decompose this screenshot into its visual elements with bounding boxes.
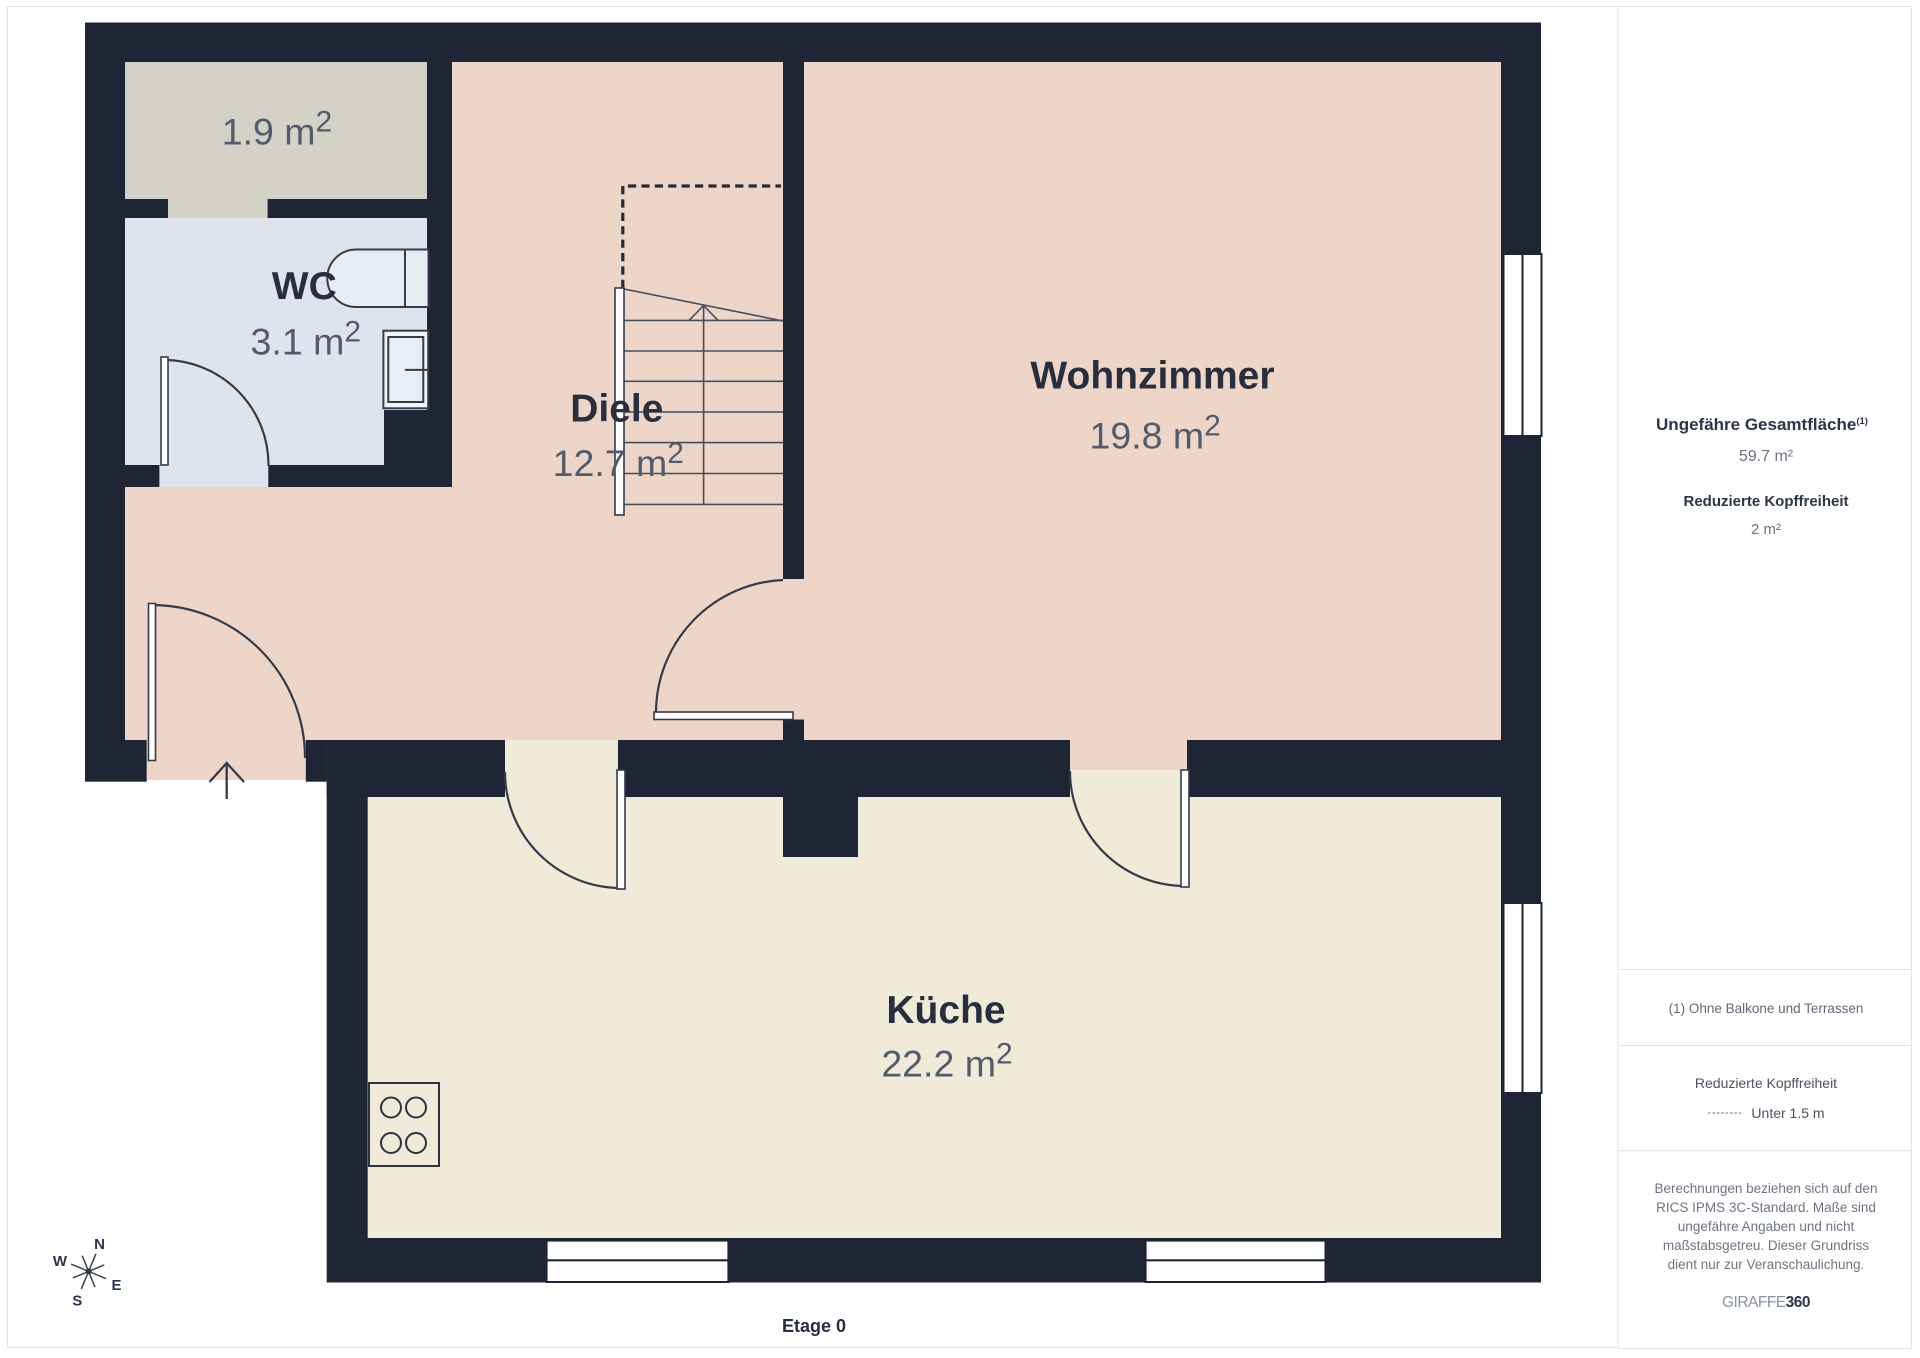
svg-text:ungefähre Angaben und nicht: ungefähre Angaben und nicht <box>1678 1219 1855 1234</box>
svg-text:Reduzierte Kopffreiheit: Reduzierte Kopffreiheit <box>1683 493 1848 510</box>
svg-text:59.7 m²: 59.7 m² <box>1739 448 1794 465</box>
svg-text:W: W <box>53 1253 68 1270</box>
svg-text:Etage 0: Etage 0 <box>782 1316 846 1336</box>
svg-text:WC: WC <box>272 265 337 308</box>
svg-text:Ungefähre Gesamtfläche(1): Ungefähre Gesamtfläche(1) <box>1656 415 1868 434</box>
svg-text:Diele: Diele <box>570 388 663 431</box>
svg-text:S: S <box>72 1293 82 1310</box>
svg-text:dient nur zur Veranschaulichun: dient nur zur Veranschaulichung. <box>1668 1257 1865 1272</box>
svg-text:22.2 m2: 22.2 m2 <box>881 1038 1012 1085</box>
svg-text:Wohnzimmer: Wohnzimmer <box>1030 355 1274 398</box>
svg-text:Berechnungen beziehen sich auf: Berechnungen beziehen sich auf den <box>1655 1181 1878 1196</box>
svg-text:N: N <box>94 1236 105 1253</box>
svg-text:E: E <box>111 1277 121 1294</box>
svg-text:maßstabsgetreu. Dieser Grundri: maßstabsgetreu. Dieser Grundriss <box>1663 1238 1870 1253</box>
svg-text:(1) Ohne Balkone und Terrassen: (1) Ohne Balkone und Terrassen <box>1669 1001 1864 1016</box>
svg-text:Unter 1.5 m: Unter 1.5 m <box>1751 1105 1824 1121</box>
svg-text:19.8 m2: 19.8 m2 <box>1090 410 1221 457</box>
svg-text:Reduzierte Kopffreiheit: Reduzierte Kopffreiheit <box>1695 1075 1837 1091</box>
svg-text:2 m²: 2 m² <box>1751 521 1781 538</box>
svg-text:Küche: Küche <box>886 989 1005 1032</box>
svg-text:RICS IPMS 3C-Standard. Maße si: RICS IPMS 3C-Standard. Maße sind <box>1656 1200 1876 1215</box>
svg-text:GIRAFFE360: GIRAFFE360 <box>1722 1294 1810 1311</box>
svg-text:12.7 m2: 12.7 m2 <box>553 437 684 484</box>
